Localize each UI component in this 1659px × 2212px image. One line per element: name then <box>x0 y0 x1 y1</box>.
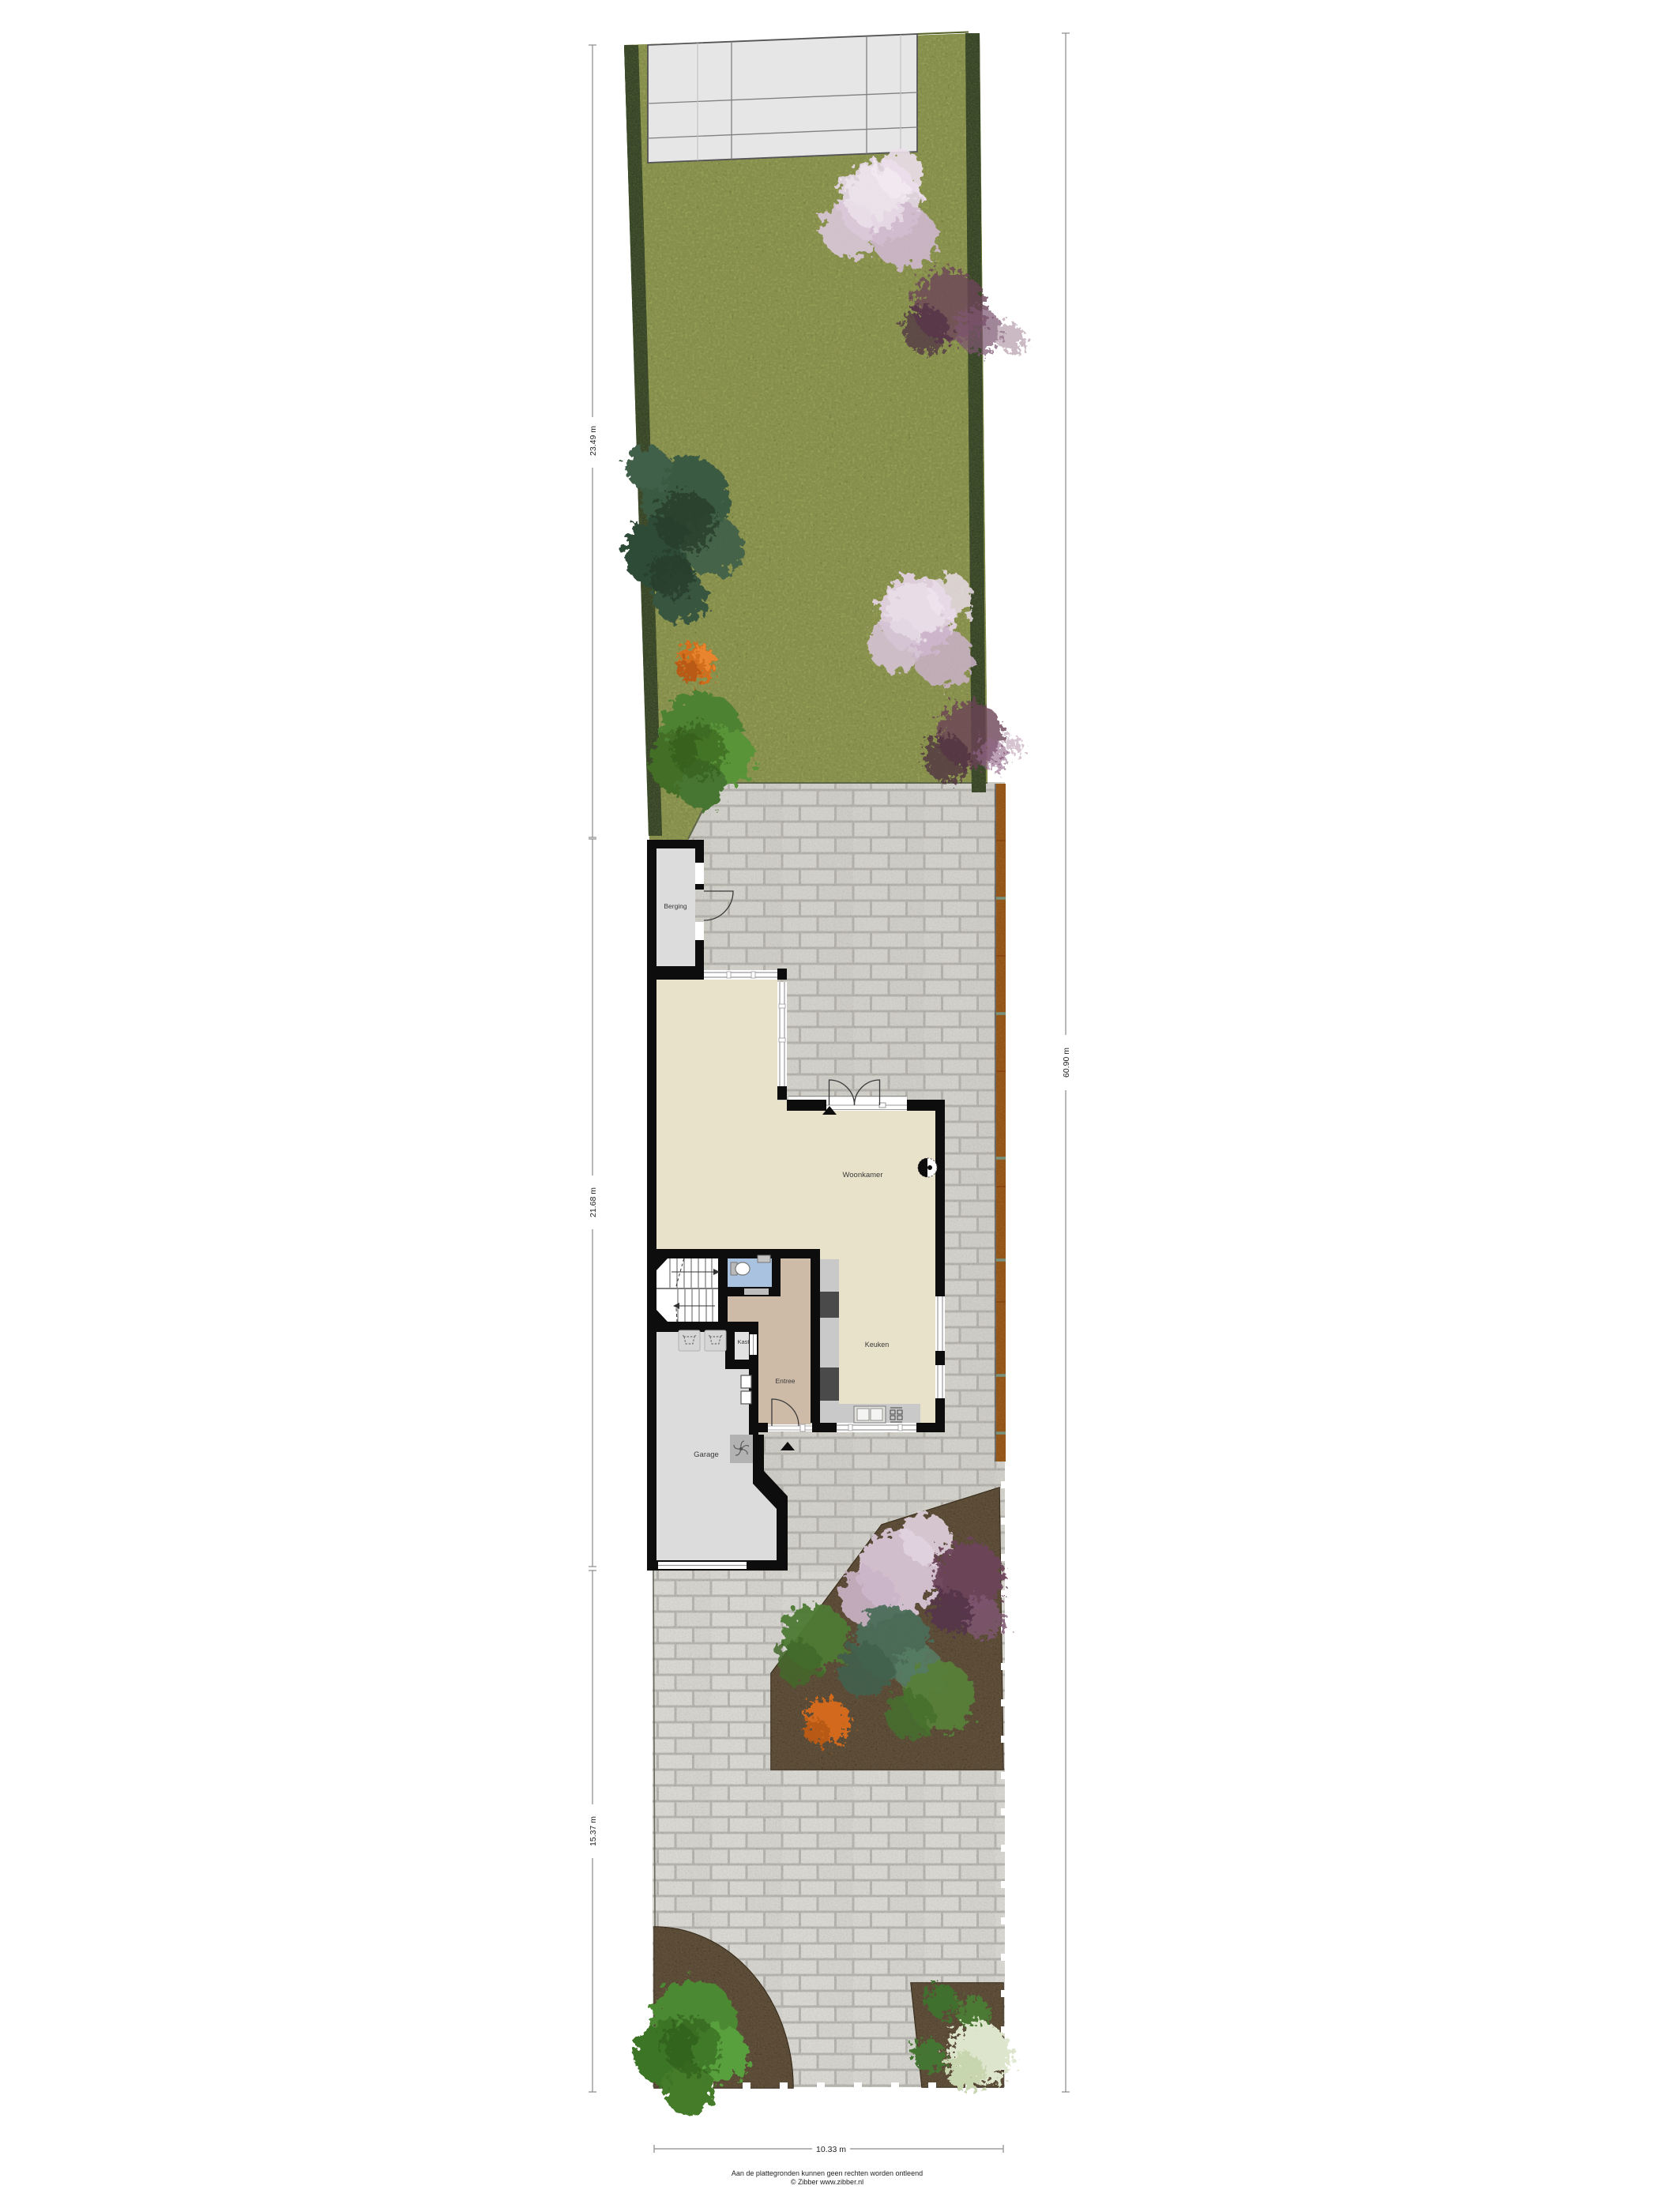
svg-text:Berging: Berging <box>664 902 687 910</box>
svg-text:Keuken: Keuken <box>865 1341 890 1349</box>
svg-text:Kast: Kast <box>737 1338 750 1345</box>
svg-text:60.90 m: 60.90 m <box>1062 1048 1071 1078</box>
svg-text:10.33 m: 10.33 m <box>816 2145 846 2154</box>
svg-text:Aan de plattegronden kunnen ge: Aan de plattegronden kunnen geen rechten… <box>732 2169 923 2177</box>
svg-text:Garage: Garage <box>694 1450 719 1459</box>
svg-text:© Zibber www.zibber.nl: © Zibber www.zibber.nl <box>791 2178 863 2186</box>
svg-text:Entree: Entree <box>775 1377 795 1385</box>
svg-text:Woonkamer: Woonkamer <box>842 1171 882 1179</box>
svg-text:23.49 m: 23.49 m <box>589 426 598 456</box>
svg-text:15.37 m: 15.37 m <box>589 1816 598 1846</box>
svg-text:21.68 m: 21.68 m <box>589 1187 598 1217</box>
